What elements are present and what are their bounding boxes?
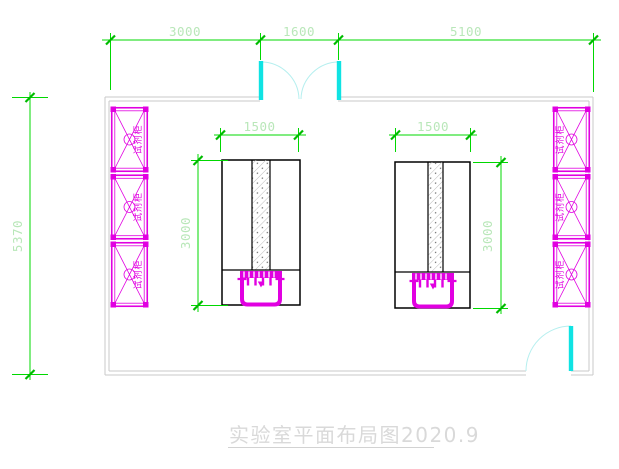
double-door-top (259, 61, 341, 100)
bench-reagent-strip (428, 162, 443, 272)
door-swing-arc-left (261, 62, 299, 99)
floor-plan-svg: 3000 1600 5100 5370 (0, 0, 619, 469)
dim-label-bench-depth: 3000 (178, 217, 193, 249)
cad-floor-plan: 3000 1600 5100 5370 (0, 0, 619, 469)
dim-label-bench-width: 1500 (417, 119, 449, 134)
cabinet-label: 试剂柜 (132, 124, 144, 154)
bench-reagent-strip (252, 160, 270, 270)
door-swing-arc-right (301, 62, 339, 99)
dimension-left-overall: 5370 (10, 92, 48, 380)
dim-label-bench-width: 1500 (243, 119, 275, 134)
cabinet-label: 试剂柜 (554, 124, 566, 154)
dimension-bench-right-depth: 3000 (473, 156, 508, 314)
cabinet-label: 试剂柜 (554, 259, 566, 289)
drawing-title-block: 实验室平面布局图2020.9 (228, 423, 480, 448)
dimension-bench-left-width: 1500 (214, 119, 306, 152)
door-leaf-left (259, 61, 263, 100)
dimension-top-chain: 3000 1600 5100 (102, 24, 601, 92)
door-swing-arc (526, 326, 571, 371)
dim-label-overall-height: 5370 (10, 220, 25, 252)
reagent-cabinet-column-right: 试剂柜 试剂柜 试剂柜 (553, 107, 591, 308)
lab-bench-right (395, 162, 470, 308)
dim-label-left-bay: 3000 (169, 24, 201, 39)
dim-label-door-bay: 1600 (283, 24, 315, 39)
dimension-bench-right-width: 1500 (389, 119, 477, 152)
cabinet-label: 试剂柜 (132, 259, 144, 289)
cabinet-label: 试剂柜 (554, 192, 566, 222)
door-leaf (569, 326, 573, 371)
dim-witness-lines (111, 33, 594, 92)
dimension-bench-left-depth: 3000 (178, 154, 228, 312)
drawing-title: 实验室平面布局图2020.9 (229, 423, 480, 447)
lab-bench-left (222, 160, 300, 305)
dim-label-right-bay: 5100 (450, 24, 482, 39)
cabinet-label: 试剂柜 (132, 192, 144, 222)
door-leaf-right (337, 61, 341, 100)
reagent-cabinet-column-left: 试剂柜 试剂柜 试剂柜 (111, 107, 149, 308)
door-bottom-right (526, 326, 573, 371)
dim-label-bench-depth: 3000 (480, 220, 495, 252)
